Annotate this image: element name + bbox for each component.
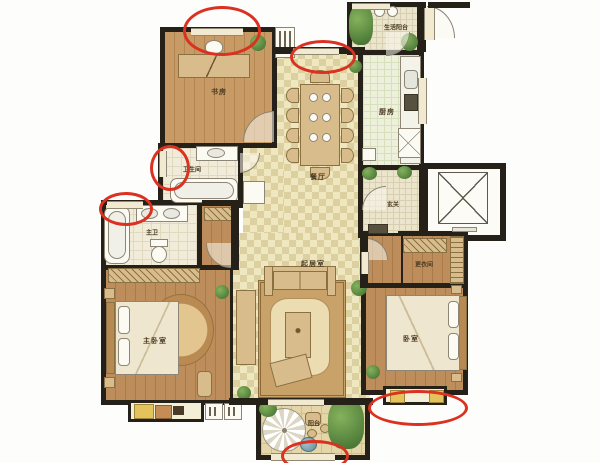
tv-cabinet <box>236 290 256 365</box>
living-room-label: 起居室 <box>301 259 325 269</box>
pillow <box>118 338 130 366</box>
floor-plan: 书房 卫生间 主卫 主卧室 起居室 餐厅 厨房 生活阳台 玄关 更衣间 卧室 阳… <box>0 0 600 463</box>
bed-headboard <box>106 302 115 374</box>
dining-chair <box>341 88 354 103</box>
study-desk <box>178 54 250 78</box>
dining-chair <box>341 108 354 123</box>
hall-left-wall <box>231 200 239 270</box>
dining-chair <box>286 108 299 123</box>
elevator-ledge <box>452 227 477 232</box>
corridor-top-wall <box>202 200 235 206</box>
window-symbol-icon <box>228 407 238 416</box>
dining-chair <box>286 128 299 143</box>
shower-stall <box>243 181 265 204</box>
bedroom-plant-icon <box>215 285 229 299</box>
balcony-label: 阳台 <box>308 419 320 428</box>
kitchen-sink <box>404 70 418 89</box>
kitchen-label: 厨房 <box>379 107 395 117</box>
sofa-seat <box>273 271 327 290</box>
pillow <box>448 301 459 328</box>
kitchen-window <box>418 78 427 124</box>
shoe-cabinet <box>368 224 388 234</box>
plate-icon <box>322 93 331 102</box>
nightstand <box>104 377 115 388</box>
bay-decor <box>173 406 184 415</box>
foyer-plant-icon <box>397 166 412 179</box>
dining-chair <box>286 148 299 163</box>
plate-icon <box>309 93 318 102</box>
foyer-label: 玄关 <box>387 200 399 209</box>
plate-icon <box>309 133 318 142</box>
annotation-bedroom-bottom-window <box>368 390 468 426</box>
annotation-study-top-window <box>183 6 261 56</box>
foyer-plant-icon <box>362 167 377 180</box>
toilet-bowl <box>151 246 167 263</box>
bay-cushion <box>134 404 154 419</box>
fridge-space <box>398 128 421 158</box>
coffee-table <box>285 312 311 358</box>
master-bedroom-label: 主卧室 <box>143 336 167 346</box>
elevator-car-icon <box>438 172 488 224</box>
bench <box>197 371 212 397</box>
clothes-rack <box>403 238 447 253</box>
sofa-arm <box>327 266 336 296</box>
stove-icon <box>404 94 418 111</box>
service-balcony-window <box>352 3 390 10</box>
plate-icon <box>322 113 331 122</box>
window-symbol-icon <box>209 407 219 416</box>
floor-drain <box>362 148 376 161</box>
service-balcony-plant-icon <box>349 5 373 45</box>
bedroom-label: 卧室 <box>403 334 419 344</box>
study-label: 书房 <box>211 87 227 97</box>
nightstand <box>451 285 462 294</box>
shelving <box>450 236 464 284</box>
service-balcony-label: 生活阳台 <box>384 23 408 32</box>
balcony-plant-icon <box>328 399 364 449</box>
dining-chair <box>341 128 354 143</box>
wardrobe <box>108 268 200 283</box>
window-symbol-box <box>205 403 223 420</box>
nightstand <box>451 373 462 382</box>
bedroom-plant-icon <box>366 365 380 379</box>
dining-chair <box>286 88 299 103</box>
annotation-master-bath-window <box>99 192 153 226</box>
pillow <box>118 306 130 334</box>
bay-cushion <box>155 405 172 419</box>
dining-room-label: 餐厅 <box>310 172 326 182</box>
window-symbol-box <box>224 403 242 420</box>
sofa-arm <box>264 266 273 296</box>
nightstand <box>104 288 115 299</box>
master-bath-label: 主卫 <box>146 228 158 237</box>
balcony-door-opening <box>268 399 324 406</box>
annotation-bathroom-left-window <box>150 145 190 191</box>
corridor-door-opening <box>361 252 369 274</box>
plate-icon <box>309 113 318 122</box>
dressing-room-label: 更衣间 <box>415 260 433 269</box>
bath-sink <box>207 148 225 158</box>
pillow <box>448 333 459 360</box>
closet-hatch <box>204 207 232 221</box>
sink <box>163 208 180 219</box>
plate-icon <box>322 133 331 142</box>
annotation-dining-top-window <box>290 40 356 74</box>
dining-chair <box>341 148 354 163</box>
dining-table <box>300 84 340 166</box>
entry-sill <box>424 8 435 40</box>
